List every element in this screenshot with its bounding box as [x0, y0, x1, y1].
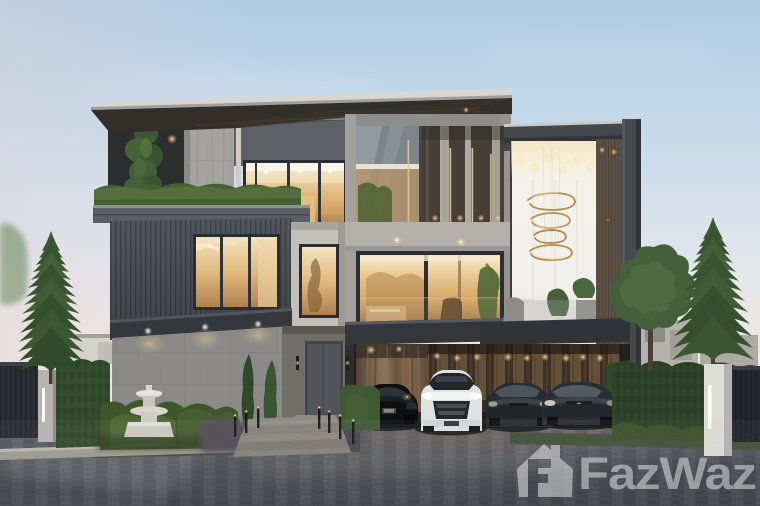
svg-text:FazWaz: FazWaz	[578, 448, 756, 499]
